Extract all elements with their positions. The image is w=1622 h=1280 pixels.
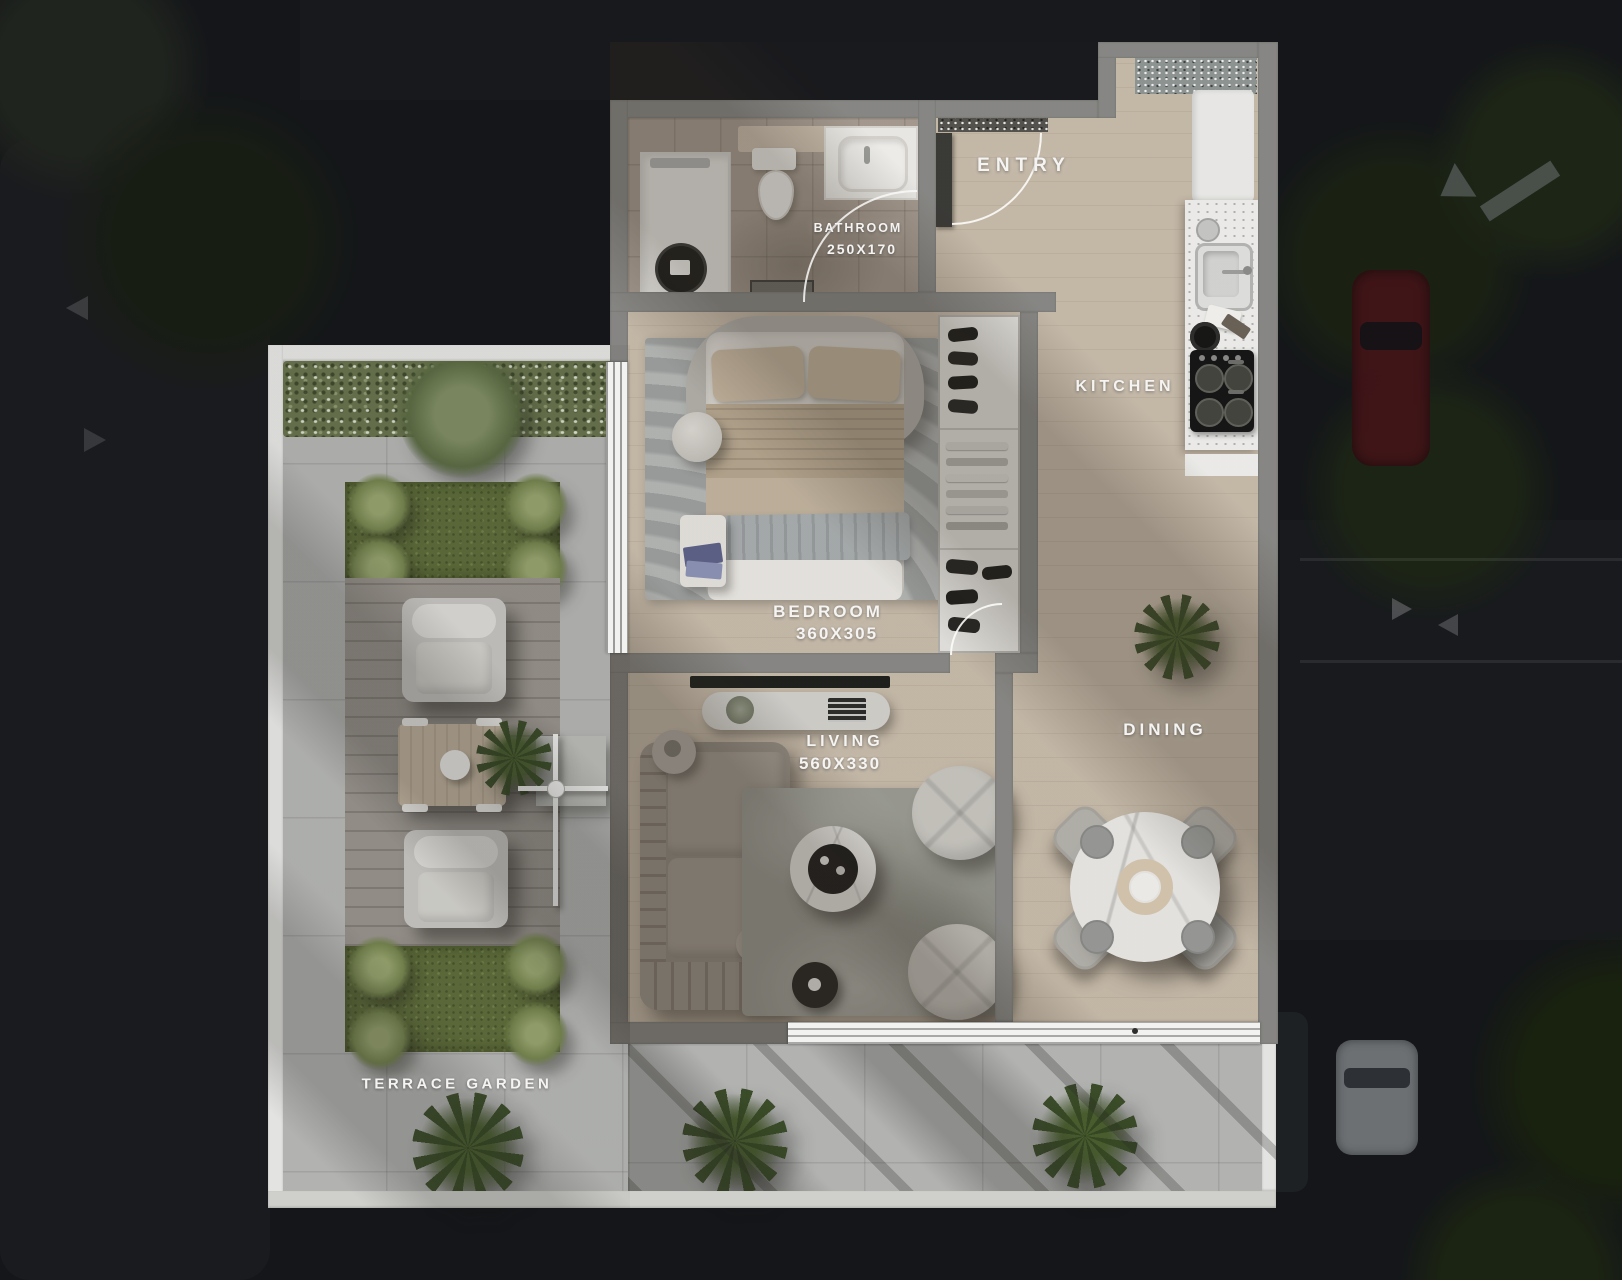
entry-label: ENTRY (977, 155, 1071, 177)
wall-closet-right (1020, 312, 1038, 653)
tray-cup-2 (836, 866, 845, 875)
dining-setting-2 (1181, 825, 1215, 859)
burner-pot-handle-2 (1228, 390, 1244, 394)
closet-shelf-line-1 (940, 428, 1018, 430)
shrub-lower-br (504, 1002, 568, 1066)
closet-shelf-line-2 (940, 548, 1018, 550)
dining-setting-1 (1080, 825, 1114, 859)
toilet-tank (752, 148, 796, 170)
wall-bathroom-right (918, 100, 936, 292)
bed-duvet-light (706, 478, 904, 516)
terrace-wall-bottom (268, 1191, 1276, 1208)
kitchen-counter-lower (1185, 454, 1258, 476)
outdoor-table-plate (440, 750, 470, 780)
burner-pot-handle-1 (1228, 360, 1244, 364)
bedroom-pouf (672, 412, 722, 462)
outdoor-table-leg-4 (476, 804, 502, 812)
wall-top-main (610, 100, 1098, 118)
closet-hanger-1 (946, 442, 1008, 450)
parked-red-car (1352, 270, 1430, 466)
living-pouf-2 (908, 924, 1006, 1020)
shower-fixture (650, 158, 710, 168)
closet-shoes-top-2 (948, 351, 979, 366)
bed-pillow-right (807, 346, 902, 403)
living-terrace-slider (788, 1022, 1260, 1044)
bedroom-terrace-slider (606, 362, 628, 653)
tv-panel (690, 676, 890, 688)
cooktop-knob-2 (1211, 355, 1217, 361)
closet-shoes-bottom-3 (946, 589, 979, 605)
dining-setting-4 (1181, 920, 1215, 954)
burner-1 (1195, 364, 1224, 393)
outdoor-table-leg-1 (402, 718, 428, 726)
road-arrow-right-2 (1438, 614, 1458, 636)
parasol-pole-vertical (553, 734, 558, 906)
kitchen-label: KITCHEN (1075, 378, 1174, 396)
wall-left-lower (610, 653, 628, 1044)
living-label: LIVING (806, 733, 883, 751)
road-arrow-right-1 (1392, 598, 1412, 620)
white-car-windshield (1344, 1068, 1410, 1088)
road-top (300, 0, 1200, 100)
parasol-joint (547, 780, 565, 798)
living-pouf-1 (912, 766, 1008, 860)
road-arrow-left-1 (66, 296, 88, 320)
outdoor-armchair-2-seat-cushion (418, 872, 494, 922)
wall-top-right (1098, 42, 1258, 58)
tree-right-3 (1300, 360, 1560, 620)
bench-books-2 (685, 560, 722, 579)
shrub-lower-tl (347, 936, 411, 1000)
closet-hanger-6 (946, 522, 1008, 530)
wall-bedroom-bottom (610, 653, 950, 673)
burner-2 (1224, 364, 1253, 393)
parking-line-2 (1300, 660, 1622, 663)
closet-shoes-bottom-1 (945, 559, 978, 576)
kitchen-sink-basin (1203, 251, 1239, 297)
bedroom-size-label: 360X305 (796, 624, 878, 644)
parking-line-1 (1300, 558, 1622, 561)
closet-hanger-5 (946, 506, 1008, 514)
bathroom-size-label: 250X170 (827, 241, 897, 257)
bed-throw-blanket (700, 512, 911, 564)
tray-cup-1 (820, 856, 829, 865)
dining-setting-3 (1080, 920, 1114, 954)
shrub-upper-tl (347, 473, 411, 537)
coffee-table-tray (808, 844, 858, 894)
wall-right (1258, 42, 1278, 1044)
lower-terrace-palm-1 (682, 1088, 788, 1194)
dining-plant (1134, 594, 1220, 680)
wall-bedroom-bottom-joint (995, 653, 1038, 673)
console-plant (726, 696, 754, 724)
site-plan-render: ENTRY BATHROOM 250X170 KITCHEN BEDROOM 3… (0, 0, 1622, 1280)
terrace-palm (412, 1092, 524, 1204)
burner-4 (1224, 398, 1253, 427)
shower-drain-cover (670, 260, 690, 275)
bed-pillow-left (711, 346, 806, 403)
terrace-garden-label: TERRACE GARDEN (362, 1076, 553, 1093)
side-table-kettle (664, 740, 681, 757)
dining-label: DINING (1123, 720, 1207, 740)
outdoor-armchair-2-back-cushion (414, 836, 498, 868)
entry-door-leaf (934, 133, 952, 227)
console-books (828, 698, 866, 722)
counter-pot (1190, 322, 1220, 352)
closet-shoes-top-3 (948, 375, 979, 390)
closet-shoes-top-4 (947, 399, 978, 415)
terrace-wall-left (268, 345, 283, 1208)
wall-living-dining-divider (995, 673, 1013, 1022)
dining-center-plate (1131, 873, 1159, 901)
sink-faucet-base (1243, 266, 1252, 275)
terrace-spiky-plant (476, 720, 552, 796)
kitchen-window-ledge (1135, 58, 1257, 94)
terrace-tree (398, 350, 526, 478)
shrub-lower-tr (504, 932, 568, 996)
bed-foot-sheet (708, 560, 902, 600)
outdoor-armchair-1-seat-cushion (416, 642, 492, 694)
living-size-label: 560X330 (799, 754, 881, 774)
shower-glass-divider (728, 152, 731, 302)
burner-3 (1195, 398, 1224, 427)
wall-living-bottom-left (610, 1022, 788, 1044)
wall-left-upper (610, 100, 628, 362)
parked-white-car (1336, 1040, 1418, 1155)
closet-hanger-2 (946, 458, 1008, 466)
vanity-faucet (864, 146, 870, 164)
closet-hanger-3 (946, 474, 1008, 482)
bathroom-label: BATHROOM (814, 221, 903, 235)
refrigerator (1192, 90, 1254, 202)
cooktop-knob-1 (1199, 355, 1205, 361)
red-car-windshield (1360, 322, 1422, 350)
lower-terrace-palm-2 (1032, 1083, 1138, 1189)
closet-hanger-4 (946, 490, 1008, 498)
shrub-upper-tr (504, 473, 568, 537)
lower-terrace-wall-right (1262, 1044, 1276, 1191)
black-side-table-cup (808, 978, 821, 991)
shrub-lower-bl (347, 1006, 411, 1070)
counter-small-bowl (1196, 218, 1220, 242)
bedroom-label: BEDROOM (773, 602, 883, 622)
slider-handle (1132, 1028, 1138, 1034)
vanity-sink-basin (838, 136, 908, 192)
road-arrow-left-2 (84, 428, 106, 452)
outdoor-armchair-1-back-cushion (412, 604, 496, 638)
outdoor-table-leg-3 (402, 804, 428, 812)
terrace-wall-top (268, 345, 628, 361)
